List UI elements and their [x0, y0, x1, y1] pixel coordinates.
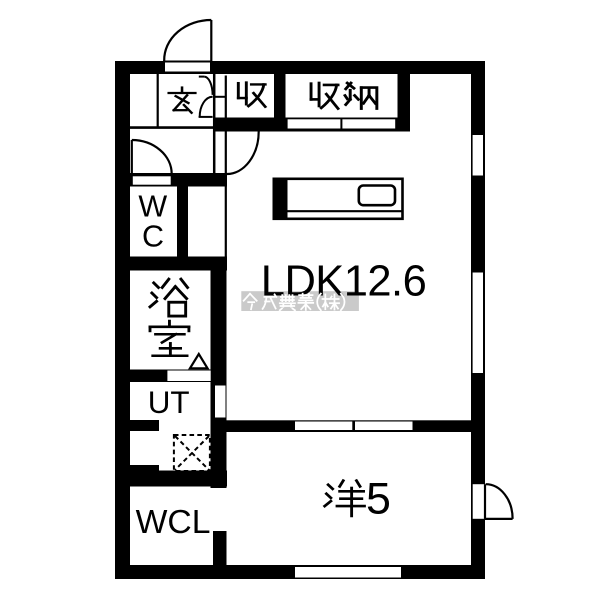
svg-text:W: W [138, 189, 167, 223]
svg-text:UT: UT [148, 385, 190, 420]
svg-text:C: C [142, 220, 164, 254]
svg-text:WCL: WCL [136, 503, 211, 541]
svg-text:5: 5 [366, 473, 391, 523]
